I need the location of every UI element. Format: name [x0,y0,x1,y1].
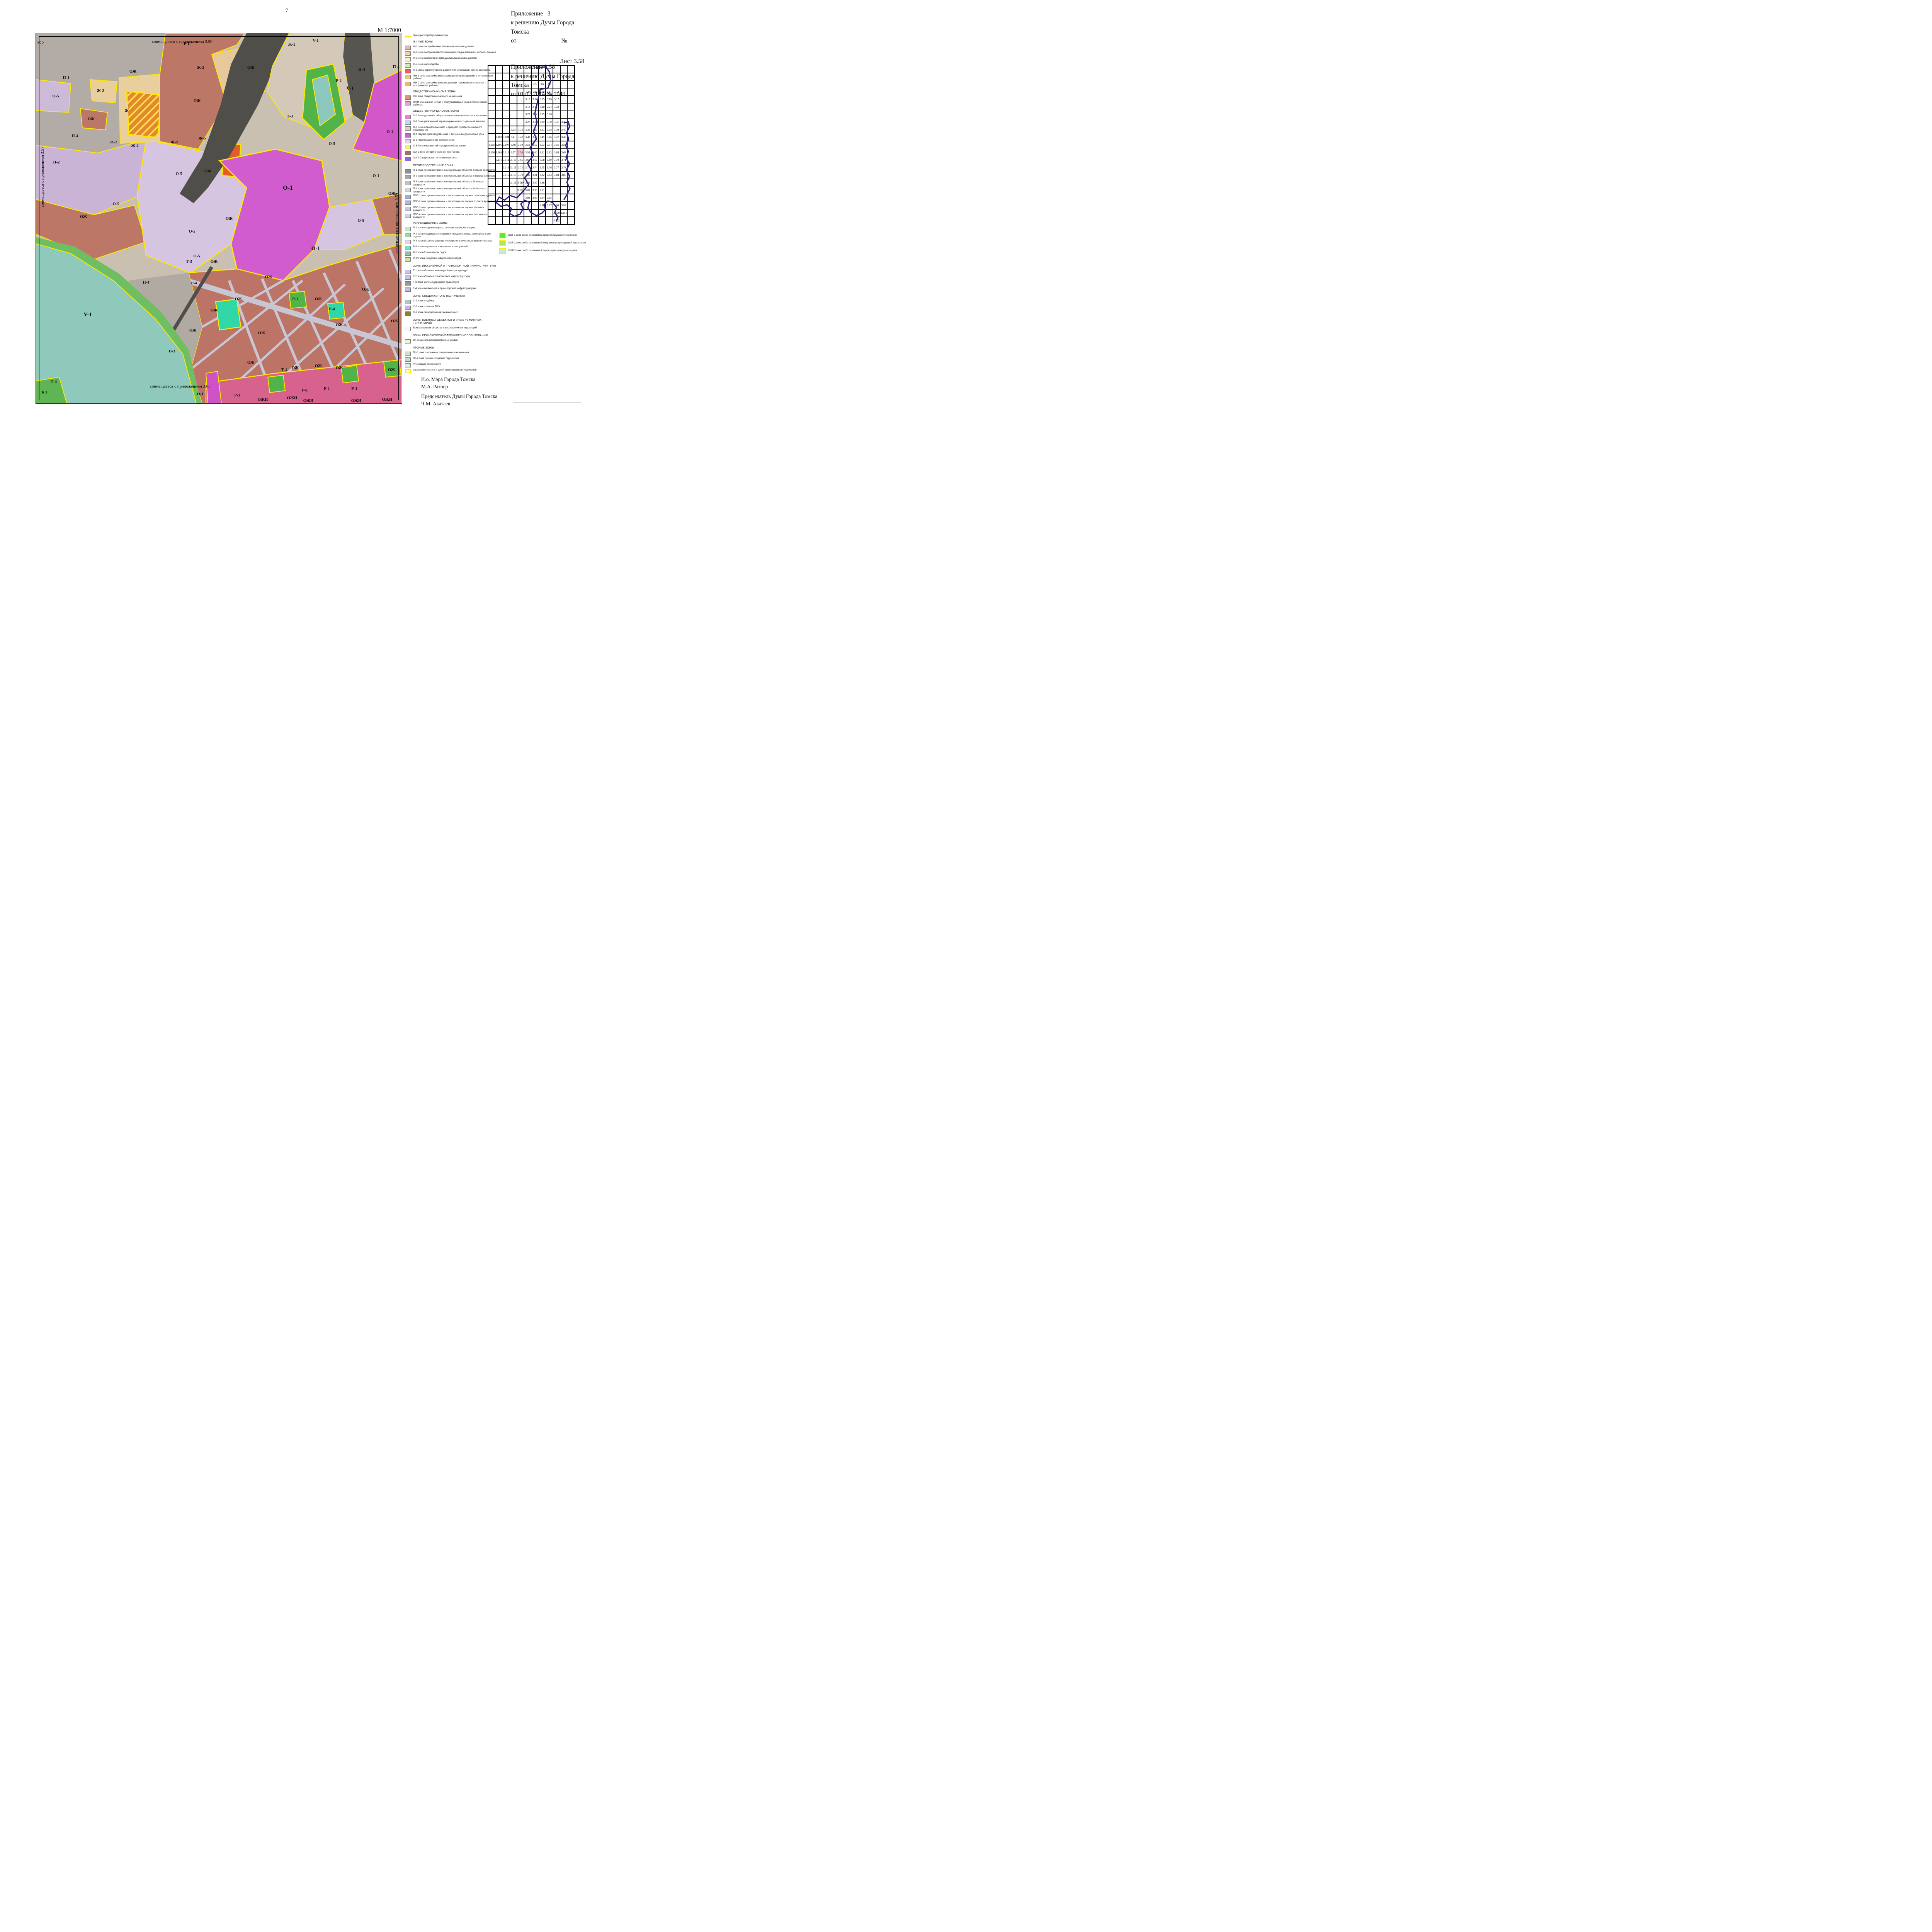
grid-cell [488,172,495,179]
grid-cell [517,194,524,202]
grid-cell-3.45[interactable]: 3.45 [539,133,546,141]
appendix-line: к решению Думы Города Томска [511,18,588,36]
grid-cell-3.92[interactable]: 3.92 [524,194,531,202]
grid-cell [502,202,510,209]
grid-cell-3.3[interactable]: 3.3 [539,73,546,81]
zone-r1-strip2 [341,366,359,383]
grid-cell-3.8[interactable]: 3.8 [524,88,531,96]
grid-cell [510,202,517,209]
legend-item-ОЖИ: ОЖИ Смешанная жилая и обслуживающая зона… [405,101,496,107]
grid-cell-3.18[interactable]: 3.18 [524,103,531,111]
legend-swatch-Т-4 [405,287,411,292]
legend-label: О-5 Производственно-деловая зона [413,139,454,141]
legend-item-Р-5: Р-5 зона ботанических садов [405,251,496,256]
grid-cell-3.22[interactable]: 3.22 [553,103,560,111]
grid-cell [567,65,575,73]
grid-cell-3.96[interactable]: 3.96 [539,202,546,209]
map-label-П-4: П-4 [359,68,366,72]
map-label-Р-4: Р-4 [191,281,197,286]
grid-cell-3.79[interactable]: 3.79 [517,172,524,179]
grid-cell-3.60[interactable]: 3.60 [531,149,539,156]
grid-cell-3.17[interactable]: 3.17 [553,95,560,103]
grid-cell-3.12[interactable]: 3.12 [553,88,560,96]
grid-cell [517,95,524,103]
legend-item-О-5: О-5 Производственно-деловая зона [405,139,496,143]
grid-cell-3.57[interactable]: 3.57 [510,149,517,156]
grid-cell [517,80,524,88]
map-label-П-4: П-4 [72,134,79,138]
grid-cell-3.93[interactable]: 3.93 [531,194,539,202]
legend-swatch-О-4 [405,133,411,138]
grid-cell-3.4[interactable]: 3.4 [546,73,553,81]
grid-cell-3.90[interactable]: 3.90 [531,187,539,194]
grid-cell-3.83[interactable]: 3.83 [546,172,553,179]
grid-cell-3.71[interactable]: 3.71 [560,156,568,164]
grid-cell-3.78[interactable]: 3.78 [560,164,568,172]
grid-cell-3.31[interactable]: 3.31 [553,118,560,126]
grid-cell-3.70[interactable]: 3.70 [553,156,560,164]
map-label-Ж-5: Ж-5 [198,136,206,141]
grid-cell-3.59[interactable]: 3.59 [524,149,531,156]
appendix-line: Приложение _3_ [511,9,588,18]
page-number: 7 [285,8,288,14]
grid-cell [502,88,510,96]
map-label-О-1: О-1 [283,185,293,191]
grid-cell-3.109[interactable]: 3.109 [495,149,503,156]
grid-cell-3.100[interactable]: 3.100 [553,209,560,217]
grid-cell-3.106[interactable]: 3.106 [495,141,503,149]
grid-cell [510,88,517,96]
grid-cell-3.89[interactable]: 3.89 [524,187,531,194]
legend-item-О-6: О-6 Зона учреждений народного образовани… [405,145,496,149]
chairman-title: Председатель Думы Города Томска [421,393,583,400]
grid-cell [567,172,575,179]
grid-cell-3.29[interactable]: 3.29 [539,118,546,126]
legend-swatch-П-3 [405,181,411,185]
legend-label: С-1 зона кладбищ [413,299,434,302]
grid-cell-3.76[interactable]: 3.76 [546,164,553,172]
legend-item-granitsy: границы территориальных зон [405,34,496,37]
grid-cell-3.118[interactable]: 3.118 [510,179,517,187]
grid-cell-3.85[interactable]: 3.85 [560,172,568,179]
grid-cell [560,217,568,224]
legend-item-В: В зона военных объектов и иных режимных … [405,327,496,331]
grid-cell-3.39[interactable]: 3.39 [553,126,560,134]
grid-cell-3.50[interactable]: 3.50 [517,141,524,149]
grid-cell [510,73,517,81]
grid-cell-3.97[interactable]: 3.97 [546,202,553,209]
legend-label: Т-3 Зона железнодорожного транспорта [413,281,459,284]
grid-cell-3.53[interactable]: 3.53 [539,141,546,149]
map-label-ОЖ: ОЖ [362,287,369,292]
grid-cell [517,103,524,111]
legend-swatch-С-3 [405,311,411,316]
grid-cell [502,111,510,119]
grid-cell-3.42[interactable]: 3.42 [517,133,524,141]
grid-cell-3.5[interactable]: 3.5 [531,80,539,88]
grid-cell [502,95,510,103]
grid-cell [560,95,568,103]
map-label-Р-1: Р-1 [324,387,330,391]
grid-cell-3.46[interactable]: 3.46 [546,133,553,141]
map-label-ОЖ: ОЖ [211,260,218,264]
legend-label: Р-4 зона спортивных комплексов и сооруже… [413,245,468,248]
legend-label: О-2 Зона учреждений здравоохранения и со… [413,120,485,123]
legend-swatch-С-1 [405,300,411,304]
grid-cell-3.36[interactable]: 3.36 [531,126,539,134]
legend-label: ПЛП-4 зона промышленных и логистических … [413,213,496,219]
grid-cell [560,88,568,96]
map-label-V-1: V-1 [84,312,92,318]
edge-note-left: совмещается с приложением 3.57 [40,146,45,207]
grid-cell [488,202,495,209]
grid-cell [502,179,510,187]
grid-cell [488,133,495,141]
map-label-ОЖ: ОЖ [194,99,201,103]
grid-cell-3.58[interactable]: 3.58 [517,149,524,156]
map-label-О-1: О-1 [197,392,204,396]
grid-cell-3.14[interactable]: 3.14 [531,95,539,103]
legend-label: Зона комплексного и устойчивого развития… [413,369,476,371]
grid-cell-3.88[interactable]: 3.88 [539,179,546,187]
map-label-Т-4: Т-4 [281,368,288,372]
legend-label: О-4 Научно-производственная и технико-вн… [413,133,484,136]
oot-legend: ООТ-1 зона особо охраняемой средообразую… [499,233,586,256]
grid-cell-3.65[interactable]: 3.65 [517,156,524,164]
map-label-П-4: П-4 [393,65,400,69]
grid-cell [502,217,510,224]
legend-swatch-СХ [405,339,411,344]
grid-cell [488,209,495,217]
legend-swatch-Пр-2 [405,357,411,362]
legend-item-О-4: О-4 Научно-производственная и технико-вн… [405,133,496,138]
grid-cell-3.86[interactable]: 3.86 [524,179,531,187]
grid-cell [567,118,575,126]
grid-cell-3.120[interactable]: 3.120 [517,187,524,194]
map-label-О-1: О-1 [387,130,393,134]
grid-cell-3.91[interactable]: 3.91 [539,187,546,194]
grid-cell [502,118,510,126]
grid-cell-3.94[interactable]: 3.94 [539,194,546,202]
grid-cell-3.87[interactable]: 3.87 [531,179,539,187]
grid-cell-3.67[interactable]: 3.67 [531,156,539,164]
grid-cell [567,187,575,194]
map-label-Р-1: Р-1 [351,387,357,391]
legend-item-С-2: С-2 зона полигона ТБО [405,305,496,310]
oot-swatch-ООТ-2 [499,240,506,246]
grid-cell-3.80[interactable]: 3.80 [524,172,531,179]
grid-cell [510,103,517,111]
grid-cell-3.54[interactable]: 3.54 [546,141,553,149]
legend-item-ЖИ-1: ЖИ-1 зона застройки малоэтажными жилыми … [405,75,496,80]
map-label-Р-1: Р-1 [336,79,342,83]
grid-cell-3.49[interactable]: 3.49 [510,141,517,149]
grid-cell [553,73,560,81]
grid-cell-3.117[interactable]: 3.117 [510,172,517,179]
grid-cell [524,217,531,224]
zone-r4-sw [216,299,241,330]
grid-cell [495,164,503,172]
grid-cell [495,118,503,126]
grid-cell [495,111,503,119]
legend-label: С-3 зона складирования снежных масс [413,311,458,314]
grid-cell [488,156,495,164]
grid-cell-3.7[interactable]: 3.7 [546,80,553,88]
legend-item-О-2: О-2 Зона учреждений здравоохранения и со… [405,120,496,125]
grid-cell-3.13[interactable]: 3.13 [524,95,531,103]
grid-cell-3.74[interactable]: 3.74 [531,164,539,172]
grid-cell-3.10[interactable]: 3.10 [539,88,546,96]
grid-cell-3.110[interactable]: 3.110 [502,149,510,156]
legend-swatch-Пр-1 [405,352,411,356]
grid-cell-3.24[interactable]: 3.24 [531,111,539,119]
legend-item-Т-3: Т-3 Зона железнодорожного транспорта [405,281,496,286]
map-label-Ж-2: Ж-2 [110,140,117,145]
legend-swatch-П-2 [405,175,411,179]
legend-item-Ж-5: Ж-5 Зона перспективного развития многоэт… [405,69,496,73]
grid-cell-3.27[interactable]: 3.27 [524,118,531,126]
map-canvas[interactable]: Ж-2П-1О-5Ж-2ОЖОЖЖП-4Ж-2Ж-2Ж-2Ж-5П-2ОЖОЖЖ… [36,33,402,404]
grid-cell-3.15[interactable]: 3.15 [539,95,546,103]
grid-cell-3.48[interactable]: 3.48 [560,133,568,141]
legend-label: Р-1/1 зона городских скверов и бульваров [413,257,461,260]
grid-cell-3.21[interactable]: 3.21 [546,103,553,111]
legend-item-КУРТ: Зона комплексного и устойчивого развития… [405,369,496,373]
grid-cell-3.33[interactable]: 3.33 [510,126,517,134]
grid-cell-3.116[interactable]: 3.116 [502,172,510,179]
legend: границы территориальных зонЖИЛЫЕ ЗОНЫЖ-1… [405,34,496,374]
grid-cell-3.19[interactable]: 3.19 [531,103,539,111]
grid-cell [488,80,495,88]
grid-cell [517,118,524,126]
grid-cell [510,95,517,103]
grid-cell-3.41[interactable]: 3.41 [510,133,517,141]
grid-cell-3.102[interactable]: 3.102 [553,217,560,224]
grid-cell-3.23[interactable]: 3.23 [524,111,531,119]
oot-label: ООТ-1 зона особо охраняемой средообразую… [508,234,577,237]
grid-cell-3.61[interactable]: 3.61 [539,149,546,156]
legend-swatch-Р-4 [405,246,411,250]
grid-cell [488,103,495,111]
grid-cell-3.114[interactable]: 3.114 [502,164,510,172]
grid-cell-3.9[interactable]: 3.9 [531,88,539,96]
grid-cell-3.47[interactable]: 3.47 [553,133,560,141]
grid-cell-3.75[interactable]: 3.75 [539,164,546,172]
sheet-index-grid[interactable]: 3.23.33.43.53.63.73.83.93.103.113.123.13… [488,65,575,225]
grid-cell [502,194,510,202]
oot-swatch-ООТ-1 [499,233,506,238]
grid-cell-3.98[interactable]: 3.98 [553,202,560,209]
grid-cell [495,126,503,134]
legend-label: П-4 зона производственно-коммунальных об… [413,187,496,193]
legend-label: П-3 зона производственно-коммунальных об… [413,180,496,186]
legend-swatch-О-5 [405,139,411,143]
grid-cell-3.72[interactable]: 3.72 [517,164,524,172]
grid-cell-3.44[interactable]: 3.44 [531,133,539,141]
grid-cell [560,179,568,187]
legend-swatch-Р-3 [405,240,411,244]
grid-cell-3.84[interactable]: 3.84 [553,172,560,179]
grid-cell [502,80,510,88]
grid-cell [553,194,560,202]
grid-cell [495,217,503,224]
grid-cell-3.101[interactable]: 3.101 [560,209,568,217]
grid-cell-3.25[interactable]: 3.25 [539,111,546,119]
grid-cell [546,187,553,194]
oot-label: ООТ-3 зона особо охраняемой территории к… [508,250,577,252]
grid-cell-3.95[interactable]: 3.95 [546,194,553,202]
map-label-Т-3: Т-3 [287,114,293,119]
grid-cell-3.52[interactable]: 3.52 [531,141,539,149]
grid-cell [567,141,575,149]
map-label-ОЖИ: ОЖИ [382,398,392,402]
grid-cell-3.6[interactable]: 3.6 [539,80,546,88]
grid-cell-3.77[interactable]: 3.77 [553,164,560,172]
grid-cell-3.63[interactable]: 3.63 [553,149,560,156]
grid-cell [517,217,524,224]
grid-cell [488,187,495,194]
grid-cell [502,187,510,194]
grid-cell-3.37[interactable]: 3.37 [539,126,546,134]
map-label-П-4: П-4 [143,281,150,285]
map-label-ОЖ: ОЖ [88,117,95,121]
grid-cell [546,179,553,187]
grid-cell-3.119[interactable]: 3.119 [517,179,524,187]
grid-cell [488,217,495,224]
map-label-ОЖ: ОЖ [258,331,265,335]
legend-swatch-О-3 [405,126,411,131]
grid-cell-3.105[interactable]: 3.105 [488,141,495,149]
legend-swatch-V-1 [405,363,411,367]
map-label-Ж-2: Ж-2 [170,140,178,145]
legend-item-ПЛП-1: ПЛП-1 зона промышленных и логистических … [405,194,496,199]
grid-cell [560,194,568,202]
grid-cell-3.11[interactable]: 3.11 [546,88,553,96]
map-label-О-1: О-1 [373,174,379,178]
grid-cell-3.111[interactable]: 3.111 [495,156,503,164]
legend-label: Пр-1 зона озеленения специального назнач… [413,351,469,354]
grid-cell-3.113[interactable]: 3.113 [510,156,517,164]
grid-cell-3.62[interactable]: 3.62 [546,149,553,156]
grid-cell-3.43[interactable]: 3.43 [524,133,531,141]
legend-label: ОИ-2 Специальная историческая зона [413,156,457,159]
grid-cell-3.68[interactable]: 3.68 [539,156,546,164]
grid-cell [488,126,495,134]
grid-cell [553,111,560,119]
grid-cell-3.56[interactable]: 3.56 [560,141,568,149]
map-label-ОЖ: ОЖ [211,308,218,313]
grid-cell-3.26[interactable]: 3.26 [546,111,553,119]
grid-cell [567,111,575,119]
grid-cell [510,194,517,202]
map-label-ОЖ: ОЖ [315,364,322,368]
grid-cell-3.28[interactable]: 3.28 [531,118,539,126]
legend-item-П-4: П-4 зона производственно-коммунальных об… [405,187,496,193]
oot-item-ООТ-3: ООТ-3 зона особо охраняемой территории к… [499,248,586,254]
legend-item-Т-4: Т-4 зона инженерной и транспортной инфра… [405,287,496,292]
grid-cell [517,88,524,96]
grid-cell-3.20[interactable]: 3.20 [539,103,546,111]
legend-item-Р-1: Р-1 зона городских парков, скверов, садо… [405,226,496,231]
grid-cell [502,126,510,134]
grid-cell-3.104[interactable]: 3.104 [502,133,510,141]
legend-swatch-Ж-4 [405,63,411,68]
grid-cell [488,65,495,73]
legend-label: Ж-2 зона застройки малоэтажными и средне… [413,51,496,54]
map-label-О-5: О-5 [113,202,119,206]
legend-swatch-Ж-3 [405,57,411,61]
legend-swatch-ОЖИ [405,101,411,105]
map-label-Р-1: Р-1 [234,393,240,398]
map-label-Р-4: Р-4 [329,307,335,311]
grid-cell-3.16[interactable]: 3.16 [546,95,553,103]
zoning-map: Ж-2П-1О-5Ж-2ОЖОЖЖП-4Ж-2Ж-2Ж-2Ж-5П-2ОЖОЖЖ… [36,33,402,403]
grid-cell-3.112[interactable]: 3.112 [502,156,510,164]
legend-label: ЖИ-2 зона застройки жилыми домами переме… [413,82,496,87]
grid-cell-3.34[interactable]: 3.34 [517,126,524,134]
oot-item-ООТ-2: ООТ-2 зона особо охраняемой спортивно-ре… [499,240,586,246]
grid-cell-3.108[interactable]: 3.108 [488,149,495,156]
grid-cell-3.115[interactable]: 3.115 [510,164,517,172]
grid-cell-3.32[interactable]: 3.32 [560,118,568,126]
grid-cell-3.107[interactable]: 3.107 [502,141,510,149]
legend-item-Ж-1: Ж-1 зона застройки многоэтажными жилыми … [405,45,496,50]
legend-label: О-6 Зона учреждений народного образовани… [413,145,466,147]
map-label-ОЖ: ОЖ [247,361,255,365]
grid-cell [524,202,531,209]
map-label-ОЖ: ОЖ [292,366,299,370]
grid-cell [488,164,495,172]
legend-label: Ж-5 Зона перспективного развития многоэт… [413,69,490,71]
map-label-О-5: О-5 [329,142,335,146]
map-label-ОЖИ: ОЖИ [351,399,361,403]
legend-item-С-3: С-3 зона складирования снежных масс [405,311,496,316]
grid-cell [567,179,575,187]
grid-cell [553,179,560,187]
grid-cell [502,103,510,111]
map-label-ОЖИ: ОЖИ [287,396,297,400]
grid-cell-3.30[interactable]: 3.30 [546,118,553,126]
grid-cell [567,80,575,88]
grid-cell [510,111,517,119]
grid-cell-3.64[interactable]: 3.64 [560,149,568,156]
grid-cell [567,209,575,217]
legend-item-Р-4: Р-4 зона спортивных комплексов и сооруже… [405,245,496,250]
grid-cell-3.99[interactable]: 3.99 [560,202,568,209]
grid-cell-3.40[interactable]: 3.40 [560,126,568,134]
grid-cell-3.66[interactable]: 3.66 [524,156,531,164]
grid-cell-3.69[interactable]: 3.69 [546,156,553,164]
grid-cell-3.2[interactable]: 3.2 [531,73,539,81]
legend-swatch-Т-1 [405,270,411,274]
map-label-ОЖ: ОЖ [80,215,87,219]
grid-cell [560,80,568,88]
grid-cell-3.81[interactable]: 3.81 [531,172,539,179]
grid-cell-3.82[interactable]: 3.82 [539,172,546,179]
legend-item-СХ: СХ зоны сельскохозяйственных угодий [405,339,496,344]
grid-cell-3.51[interactable]: 3.51 [524,141,531,149]
grid-cell [567,95,575,103]
grid-cell-3.73[interactable]: 3.73 [524,164,531,172]
legend-label: СХ зоны сельскохозяйственных угодий [413,339,458,342]
map-label-П-1: П-1 [63,76,70,80]
grid-cell-3.103[interactable]: 3.103 [495,133,503,141]
grid-cell-3.55[interactable]: 3.55 [553,141,560,149]
grid-cell-3.38[interactable]: 3.38 [546,126,553,134]
legend-section-header: ПРОИЗВОДСТВЕННЫЕ ЗОНЫ [413,164,496,167]
grid-cell [510,80,517,88]
grid-cell-3.35[interactable]: 3.35 [524,126,531,134]
